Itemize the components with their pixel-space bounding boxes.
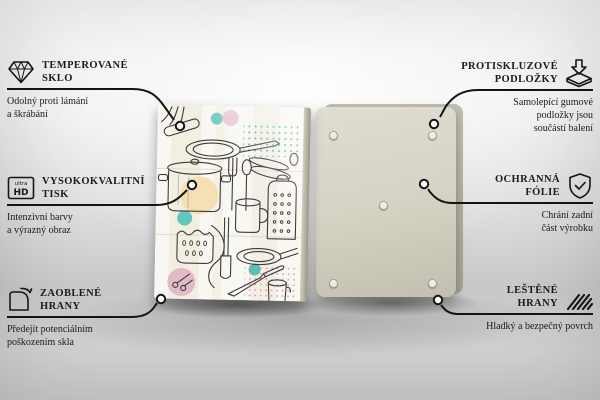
- anti-slip-pad: [428, 279, 437, 288]
- callout-anti-slip-pads: PROTISKLUZOVÉ PODLOŽKY Samolepící gumové…: [443, 58, 593, 135]
- anti-slip-pad: [329, 279, 338, 288]
- callout-title: LEŠTĚNÉ HRANY: [507, 284, 558, 310]
- back-board: [316, 107, 456, 297]
- diamond-icon: [7, 59, 35, 85]
- anti-slip-pad: [329, 131, 338, 140]
- front-board: [154, 104, 311, 301]
- callout-title: PROTISKLUZOVÉ PODLOŽKY: [461, 60, 558, 86]
- ultra-hd-icon: ultra HD: [7, 176, 35, 200]
- anti-slip-pad: [428, 131, 437, 140]
- anti-slip-pad-icon: [565, 58, 593, 88]
- callout-description: Předejít potenciálním poškozením skla: [7, 323, 157, 349]
- callout-description: Intenzivní barvy a výrazný obraz: [7, 211, 157, 237]
- shield-check-icon: [567, 172, 593, 200]
- callout-description: Chrání zadní část výrobku: [443, 209, 593, 235]
- svg-text:ultra: ultra: [15, 181, 28, 187]
- callout-title: OCHRANNÁ FÓLIE: [495, 173, 560, 199]
- callout-title: VYSOKOKVALITNÍ TISK: [42, 175, 145, 201]
- kitchen-doodle-print: [154, 104, 304, 301]
- callout-title: TEMPEROVANÉ SKLO: [42, 59, 128, 85]
- callout-description: Odolný proti lámání a škrábání: [7, 95, 157, 121]
- anti-slip-pad: [379, 201, 388, 210]
- callout-rounded-edges: ZAOBLENÉ HRANY Předejít potenciálním poš…: [7, 285, 157, 349]
- svg-text:HD: HD: [13, 188, 28, 198]
- rounded-corner-icon: [7, 287, 33, 313]
- callout-protective-film: OCHRANNÁ FÓLIE Chrání zadní část výrobku: [443, 171, 593, 235]
- callout-tempered-glass: TEMPEROVANÉ SKLO Odolný proti lámání a š…: [7, 57, 157, 121]
- callout-high-quality-print: ultra HD VYSOKOKVALITNÍ TISK Intenzivní …: [7, 173, 157, 237]
- callout-description: Samolepící gumové podložky jsou součástí…: [443, 96, 593, 135]
- product-infographic: { "colors": { "line": "#141414", "text":…: [0, 0, 600, 400]
- callout-description: Hladký a bezpečný povrch: [443, 320, 593, 333]
- callout-polished-edges: LEŠTĚNÉ HRANY Hladký a bezpečný povrch: [443, 282, 593, 333]
- callout-title: ZAOBLENÉ HRANY: [40, 287, 102, 313]
- polished-edge-icon: [565, 284, 593, 310]
